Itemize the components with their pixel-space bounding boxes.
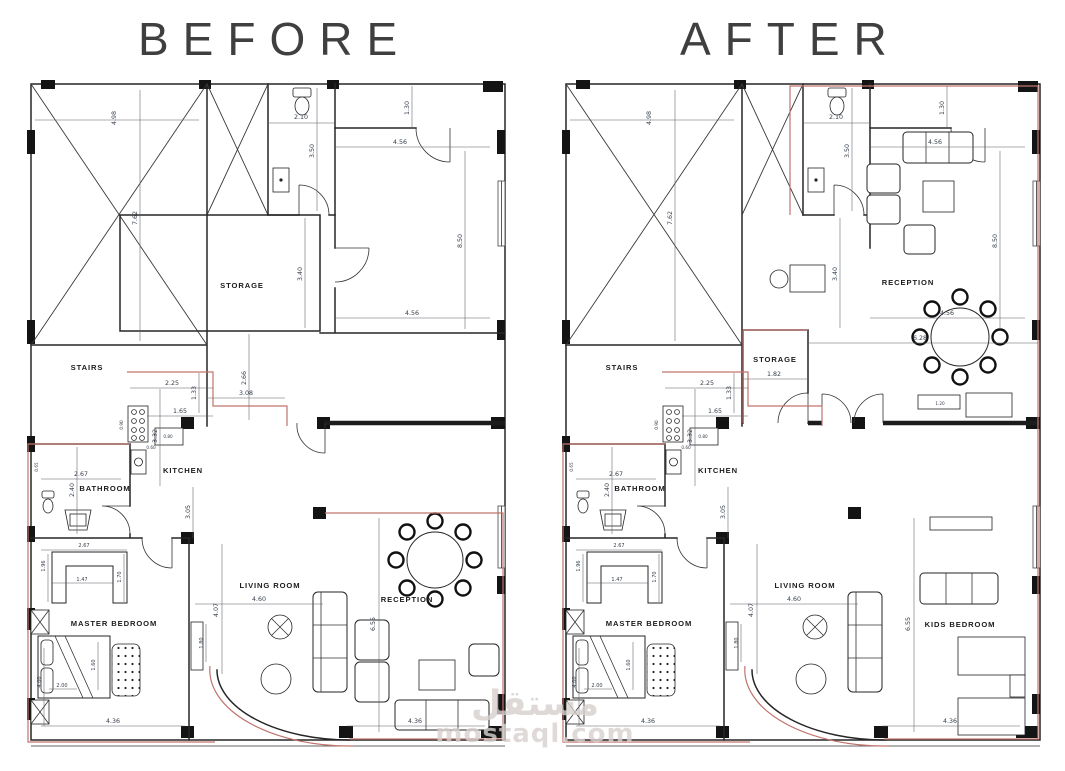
dim-reception-depth: 6.55 xyxy=(370,617,377,631)
dim-hall-width: 3.08 xyxy=(239,390,253,397)
bed-icon xyxy=(573,636,675,698)
bed-icon xyxy=(38,636,140,698)
floor-plan-comparison: BEFORE AFTER xyxy=(0,0,1065,771)
dim-bath-width: 2.67 xyxy=(74,471,88,478)
dim-closet-left: 1.96 xyxy=(41,560,47,571)
dim-bath-depth: 2.40 xyxy=(604,483,611,497)
bathroom: BATHROOM xyxy=(31,444,189,538)
dim-hall-bottom-width: 4.56 xyxy=(940,310,954,317)
after-floor-plan: STAIRS xyxy=(552,76,1042,748)
master-bedroom-label: MASTER BEDROOM xyxy=(606,619,692,628)
dim-kitchen-lower: 3.05 xyxy=(185,505,192,519)
dim-kitchen-depth: 3.32 xyxy=(152,429,159,443)
top-right-hall xyxy=(320,128,505,333)
kitchen-sink-icon xyxy=(131,450,146,474)
dim-niche: 1.30 xyxy=(939,101,946,115)
cabinet-icon xyxy=(966,393,1012,417)
dim-bed-width: 2.00 xyxy=(56,683,67,689)
dim-sink: 0.60 xyxy=(146,445,156,450)
dim-kitchen-depth: 3.32 xyxy=(687,429,694,443)
sofa-icon xyxy=(395,700,489,730)
wc-room xyxy=(803,84,870,248)
storage-label: STORAGE xyxy=(220,281,264,290)
dim-wc-depth: 3.50 xyxy=(309,144,316,158)
dim-hall-depth: 8.50 xyxy=(992,234,999,248)
storage-label: STORAGE xyxy=(753,355,797,364)
after-title: AFTER xyxy=(680,12,901,66)
master-bedroom: MASTER BEDROOM xyxy=(31,538,189,740)
armchair-icon xyxy=(469,644,499,676)
dim-cabinet-small: 1.20 xyxy=(935,401,945,406)
dim-wc-fix: 0.65 xyxy=(569,462,574,472)
dim-bedroom-depth: 4.00 xyxy=(37,676,43,687)
dim-living-width: 4.60 xyxy=(252,596,266,603)
dim-bed-width: 2.00 xyxy=(591,683,602,689)
sofa-icon xyxy=(313,592,347,692)
kitchen: KITCHEN xyxy=(128,406,203,475)
dim-bath-width: 2.67 xyxy=(609,471,623,478)
windows xyxy=(1033,181,1040,568)
stairs-label: STAIRS xyxy=(606,363,639,372)
dim-kitchen-lower: 3.05 xyxy=(720,505,727,519)
cooktop-icon xyxy=(663,406,683,442)
ceiling-lamp-icon xyxy=(268,615,292,639)
dim-tv-unit: 1.80 xyxy=(734,637,740,648)
dim-kitchen-recess: 1.33 xyxy=(191,386,198,400)
master-bedroom-label: MASTER BEDROOM xyxy=(71,619,157,628)
dim-wc-width: 2.10 xyxy=(829,114,843,121)
dim-kids-depth: 6.55 xyxy=(905,617,912,631)
dim-cabinet: 0.80 xyxy=(163,434,173,439)
dim-bedroom-width: 4.36 xyxy=(641,718,655,725)
armchair-icon xyxy=(867,195,900,224)
ceiling-lamp-icon xyxy=(803,615,827,639)
toilet-icon xyxy=(42,491,54,513)
dim-closet-left: 1.96 xyxy=(576,560,582,571)
dim-closet-inner: 1.47 xyxy=(611,577,622,583)
bathroom-label: BATHROOM xyxy=(79,484,130,493)
reception-label: RECEPTION xyxy=(882,278,934,287)
armchair-icon xyxy=(355,662,389,702)
kids-bedroom: KIDS BEDROOM xyxy=(920,517,1025,735)
wardrobe xyxy=(587,552,662,603)
wc-room xyxy=(268,84,335,215)
living-room: LIVING ROOM xyxy=(726,581,882,694)
sofa-icon xyxy=(903,132,973,163)
dim-hall-depth: 8.50 xyxy=(457,234,464,248)
kitchen-label: KITCHEN xyxy=(698,466,738,475)
dim-tv-unit: 1.80 xyxy=(199,637,205,648)
rug xyxy=(647,644,675,696)
dim-hall-bottom-width: 4.56 xyxy=(405,310,419,317)
dim-storage-depth: 3.40 xyxy=(832,267,839,281)
armchair-icon xyxy=(904,225,935,254)
dim-stair-depth: 7.62 xyxy=(132,211,139,225)
before-title: BEFORE xyxy=(138,12,411,66)
sofa-icon xyxy=(848,592,882,692)
dim-burner: 0.90 xyxy=(119,420,124,430)
dim-storage-depth: 3.40 xyxy=(297,267,304,281)
dim-bed-length: 1.60 xyxy=(91,659,97,670)
sink-icon xyxy=(273,168,289,192)
desk-icon xyxy=(958,637,1025,735)
coffee-table-icon xyxy=(923,181,954,212)
dim-closet-width: 2.67 xyxy=(78,543,89,549)
dimension-annotations: 4.98 7.62 2.10 3.50 1.30 4.56 8.50 4.56 … xyxy=(34,86,490,732)
dim-stair-width: 4.98 xyxy=(111,111,118,125)
kitchen: KITCHEN xyxy=(663,406,738,475)
rug xyxy=(112,644,140,696)
kids-bedroom-label: KIDS BEDROOM xyxy=(925,620,996,629)
kitchen-label: KITCHEN xyxy=(163,466,203,475)
side-table-icon xyxy=(261,664,291,694)
dim-closet-inner: 1.47 xyxy=(76,577,87,583)
wardrobe xyxy=(52,552,127,603)
sofa-icon xyxy=(920,573,998,604)
dim-kitchen-width: 2.25 xyxy=(700,380,714,387)
living-room: LIVING ROOM xyxy=(191,581,347,694)
dim-burner: 0.90 xyxy=(654,420,659,430)
bathroom: BATHROOM xyxy=(566,444,724,538)
cooktop-icon xyxy=(128,406,148,442)
master-bedroom: MASTER BEDROOM xyxy=(566,538,724,740)
dim-closet-right: 1.70 xyxy=(117,571,123,582)
shelf-icon xyxy=(930,517,992,530)
dim-closet-width: 2.67 xyxy=(613,543,624,549)
stairs-label: STAIRS xyxy=(71,363,104,372)
dim-niche: 1.30 xyxy=(404,101,411,115)
armchair-icon xyxy=(867,164,900,193)
dim-hall-top-width: 4.56 xyxy=(393,139,407,146)
dim-bath-depth: 2.40 xyxy=(69,483,76,497)
dim-stair-width: 4.98 xyxy=(646,111,653,125)
toilet-icon xyxy=(828,88,846,115)
toilet-icon xyxy=(577,491,589,513)
windows xyxy=(498,181,505,568)
side-table-icon xyxy=(796,664,826,694)
dim-reception-span: 6.28 xyxy=(913,335,927,342)
top-right-reception: RECEPTION xyxy=(770,128,1012,417)
desk-icon xyxy=(770,265,825,292)
kitchen-sink-icon xyxy=(666,450,681,474)
dim-wc-depth: 3.50 xyxy=(844,144,851,158)
dim-living-width: 4.60 xyxy=(787,596,801,603)
dim-wc-fix: 0.65 xyxy=(34,462,39,472)
bathroom-label: BATHROOM xyxy=(614,484,665,493)
dim-closet-right: 1.70 xyxy=(652,571,658,582)
coffee-table-icon xyxy=(419,660,455,690)
dim-living-depth: 4.07 xyxy=(213,603,220,617)
dim-bed-length: 1.60 xyxy=(626,659,632,670)
dim-hall-top-width: 4.56 xyxy=(928,139,942,146)
dim-counter: 1.65 xyxy=(173,408,187,415)
toilet-icon xyxy=(293,88,311,115)
living-room-label: LIVING ROOM xyxy=(775,581,836,590)
stairwell: STAIRS xyxy=(31,84,268,426)
dim-sink: 0.60 xyxy=(681,445,691,450)
dim-kids-width: 4.36 xyxy=(943,718,957,725)
dim-bedroom-width: 4.36 xyxy=(106,718,120,725)
storage-room: STORAGE xyxy=(120,215,320,331)
dim-reception-width: 4.36 xyxy=(408,718,422,725)
before-floor-plan: STAIRS STORAGE xyxy=(17,76,507,748)
dim-storage-width: 1.82 xyxy=(767,371,781,378)
dim-hall-height: 2.66 xyxy=(241,371,248,385)
bathtub-icon xyxy=(600,510,626,530)
bathtub-icon xyxy=(65,510,91,530)
dim-cabinet: 0.80 xyxy=(698,434,708,439)
dim-bedroom-depth: 4.00 xyxy=(572,676,578,687)
dim-living-depth: 4.07 xyxy=(748,603,755,617)
dim-wc-width: 2.10 xyxy=(294,114,308,121)
reception-label: RECEPTION xyxy=(381,595,433,604)
living-room-label: LIVING ROOM xyxy=(240,581,301,590)
sink-icon xyxy=(808,168,824,192)
dim-kitchen-width: 2.25 xyxy=(165,380,179,387)
dining-table-icon xyxy=(389,514,482,607)
dim-stair-depth: 7.62 xyxy=(667,211,674,225)
dim-counter: 1.65 xyxy=(708,408,722,415)
dim-kitchen-recess: 1.33 xyxy=(726,386,733,400)
